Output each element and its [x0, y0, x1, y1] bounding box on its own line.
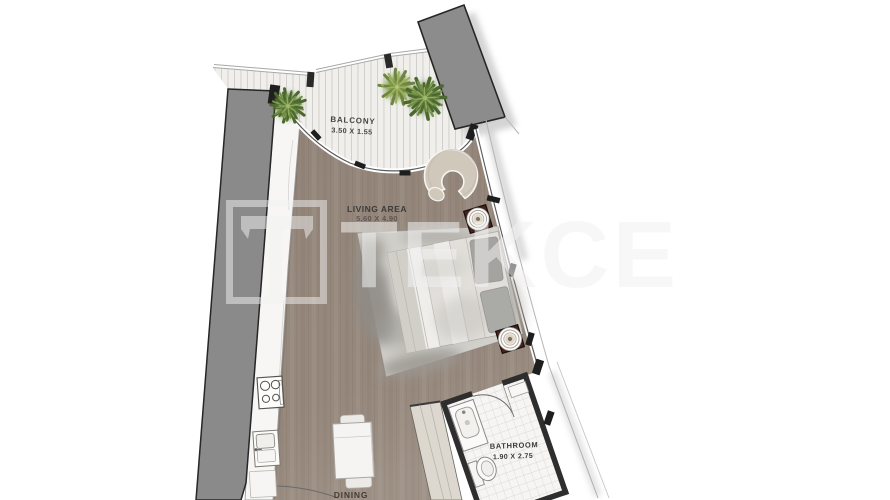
- svg-text:TEKCE: TEKCE: [340, 202, 679, 308]
- svg-text:1.90 X 2.75: 1.90 X 2.75: [493, 453, 533, 461]
- svg-text:BATHROOM: BATHROOM: [490, 440, 539, 451]
- svg-text:DINING: DINING: [334, 490, 369, 500]
